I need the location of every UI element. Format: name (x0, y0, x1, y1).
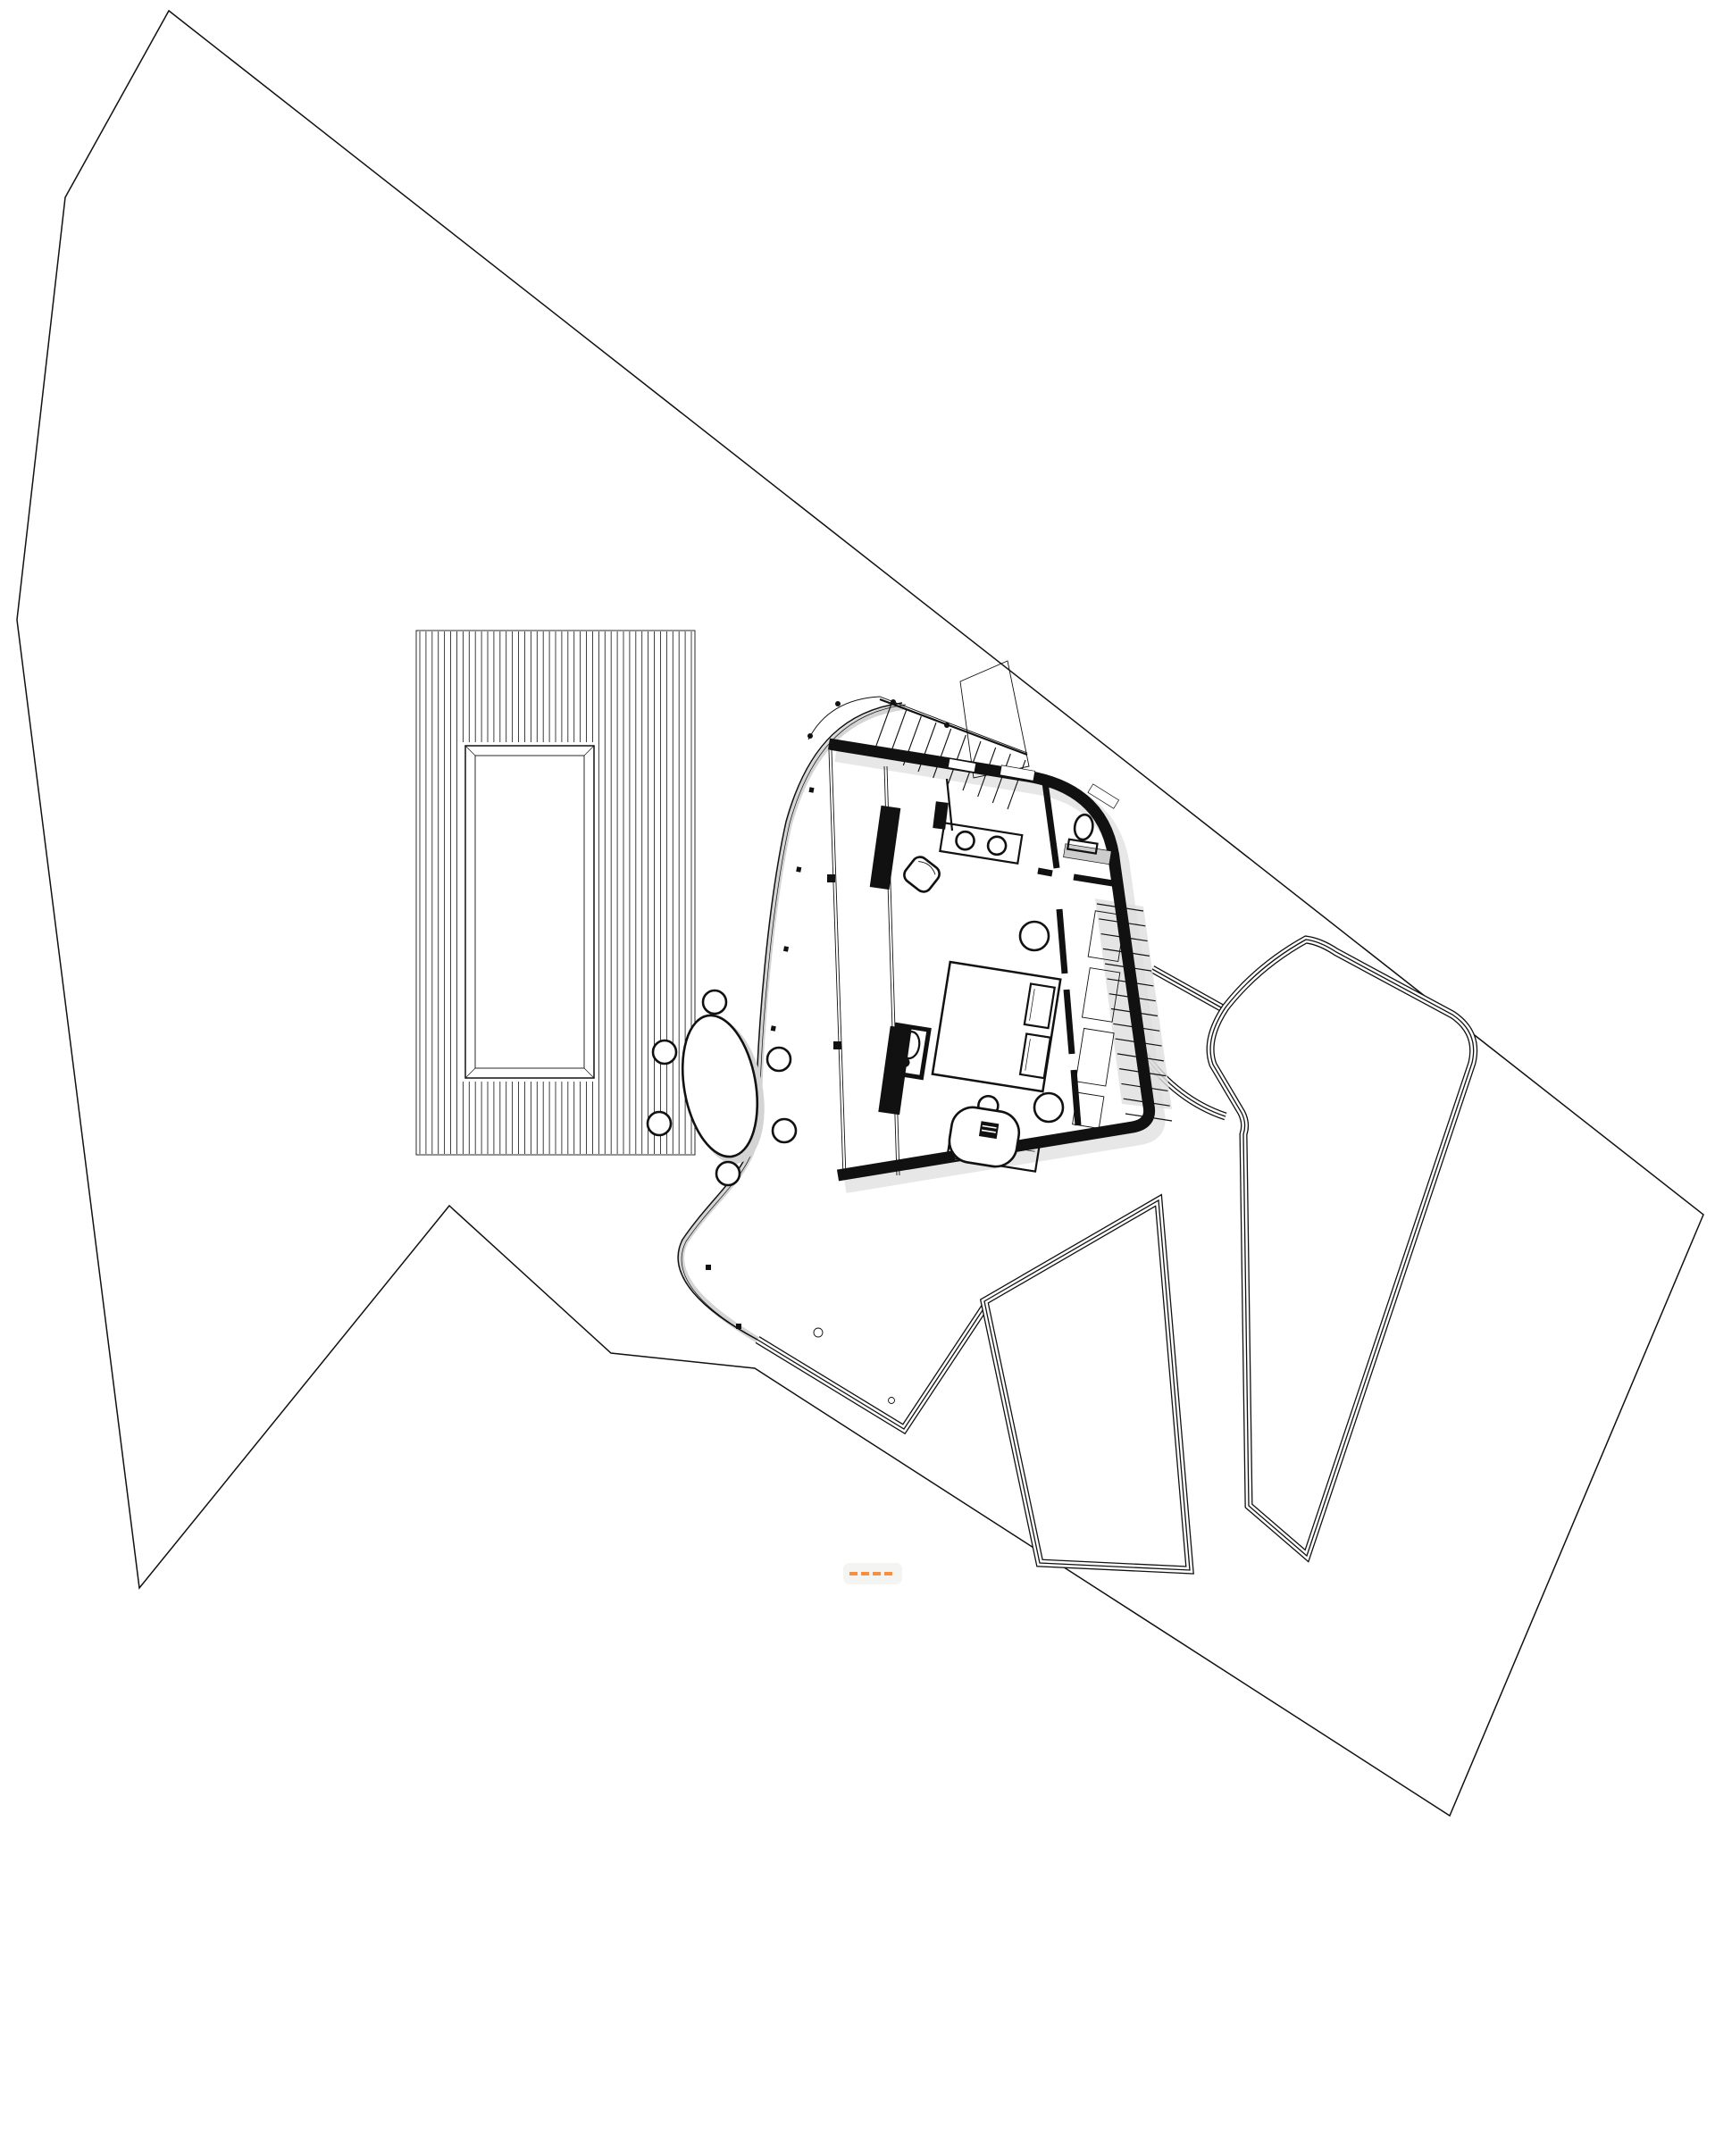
watermark (843, 1563, 902, 1584)
dining-chair (648, 1112, 671, 1135)
side-table (1020, 922, 1049, 950)
shelf (1075, 1028, 1114, 1086)
terrace-railing-posts-line (771, 1028, 775, 1029)
bathroom-wall (1038, 871, 1118, 884)
toilet-bowl (1073, 814, 1094, 841)
parapet-post (833, 1041, 841, 1049)
partition-block (933, 801, 949, 829)
side-table (1034, 1093, 1063, 1122)
property-boundary (17, 11, 1703, 1816)
bathtub-desk (946, 1091, 1024, 1170)
dining-chair (703, 990, 726, 1014)
railing-post (891, 699, 896, 705)
terrace-railing-posts-line (784, 948, 789, 949)
armchair (901, 854, 942, 895)
site-plan-page (0, 0, 1715, 2156)
sink-basin (987, 835, 1008, 856)
dining-chair (653, 1040, 676, 1064)
sink-basin (955, 831, 975, 851)
parapet-post (827, 874, 835, 882)
site-plan-drawing (0, 0, 1715, 2156)
terrace-post (736, 1324, 741, 1329)
timber-deck (416, 631, 695, 1155)
terrace-post (706, 1265, 711, 1270)
glazed-west-wall (870, 766, 912, 1175)
bath-mat (1064, 844, 1112, 865)
house (807, 661, 1172, 1184)
pillow (1025, 984, 1055, 1029)
pillow-folds (1022, 989, 1038, 1070)
headboard-wall (1059, 909, 1078, 1125)
wardrobe-block (870, 806, 901, 890)
garden-bed-large (1210, 940, 1474, 1556)
armchair-seat (901, 854, 942, 895)
railing-post (944, 723, 950, 728)
pillow (1020, 1033, 1050, 1078)
railing-post (807, 733, 813, 739)
dining-chair (773, 1119, 796, 1142)
garden-terraces (984, 940, 1474, 1570)
pool-blank (462, 742, 598, 1082)
dining-chair (767, 1048, 791, 1071)
terrace-railing-posts-line (809, 790, 814, 790)
terrace-railing-posts-line (797, 869, 801, 870)
railing-post (835, 701, 841, 706)
dining-chair (716, 1162, 740, 1185)
stair-stringer (880, 699, 1027, 755)
deck-pool (462, 742, 598, 1082)
entry-canopy (960, 661, 1029, 778)
